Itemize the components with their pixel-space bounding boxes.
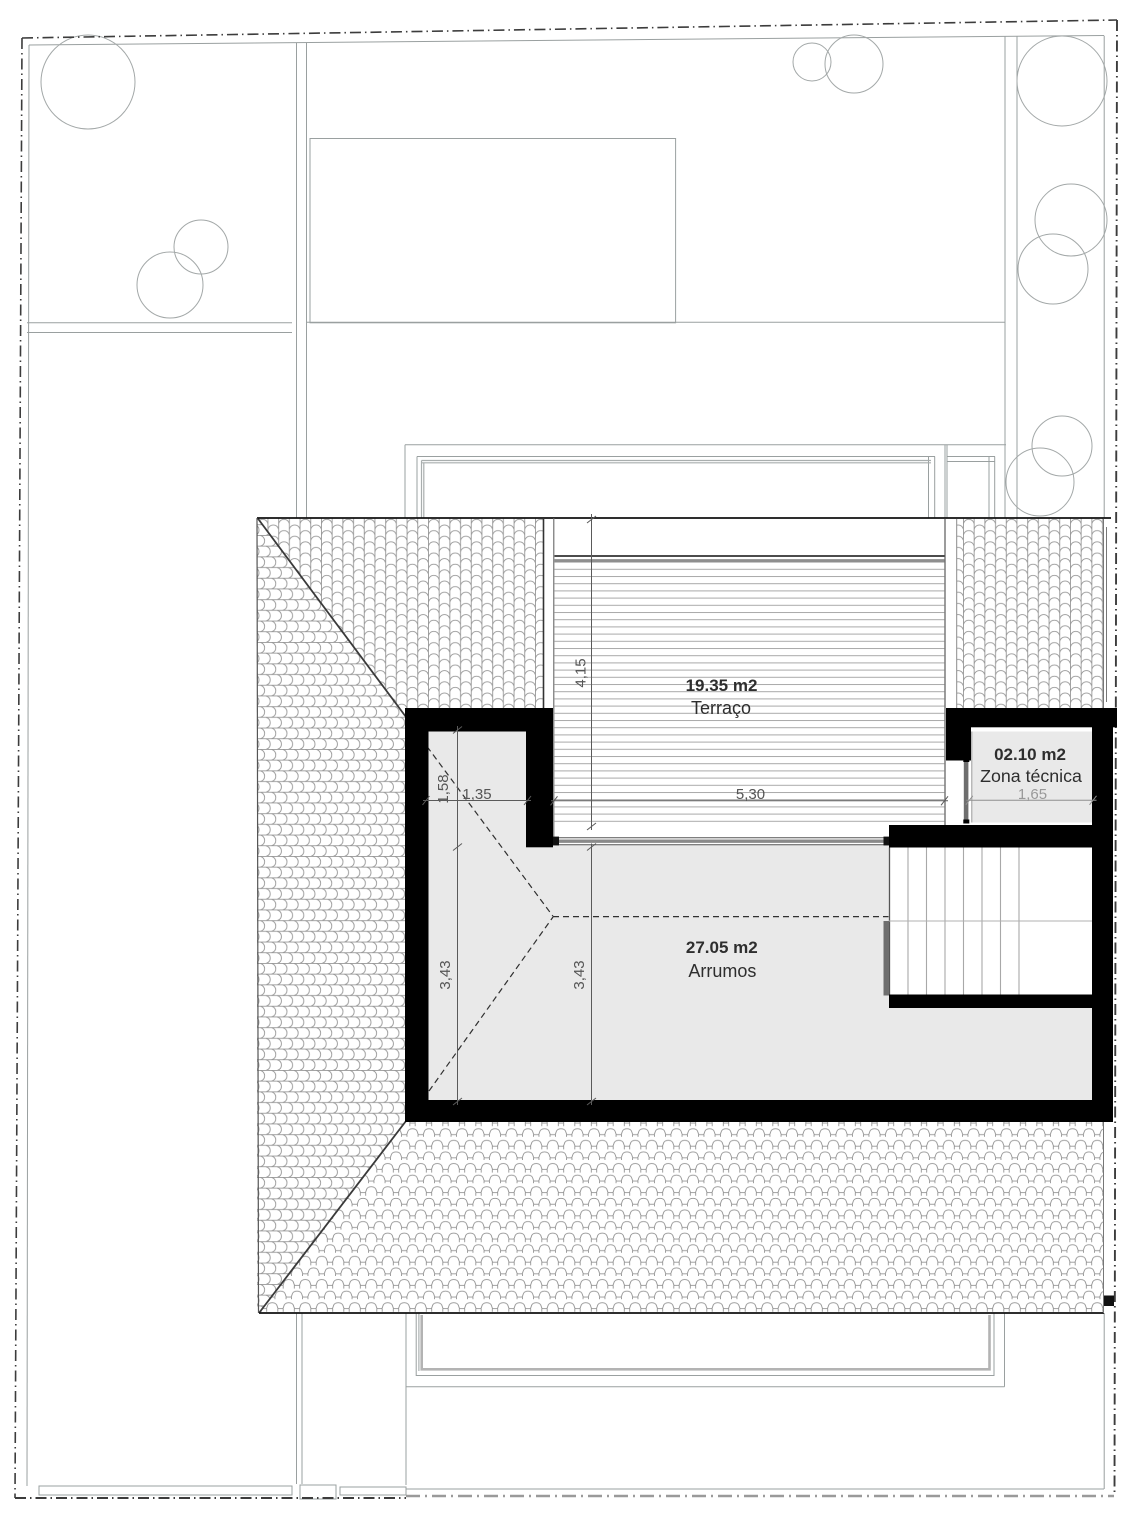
svg-text:02.10 m2: 02.10 m2: [994, 745, 1066, 764]
svg-text:3,43: 3,43: [437, 960, 454, 989]
svg-text:1,65: 1,65: [1018, 786, 1047, 803]
svg-text:3,43: 3,43: [571, 960, 588, 989]
svg-text:4,15: 4,15: [573, 658, 590, 687]
svg-text:5,30: 5,30: [736, 786, 765, 803]
svg-text:Zona técnica: Zona técnica: [980, 766, 1082, 786]
svg-text:Terraço: Terraço: [691, 698, 751, 718]
svg-text:1,58: 1,58: [435, 774, 452, 803]
svg-text:1,35: 1,35: [462, 786, 491, 803]
svg-text:Arrumos: Arrumos: [688, 961, 756, 981]
svg-text:27.05 m2: 27.05 m2: [686, 938, 758, 957]
svg-text:19.35 m2: 19.35 m2: [686, 676, 758, 695]
